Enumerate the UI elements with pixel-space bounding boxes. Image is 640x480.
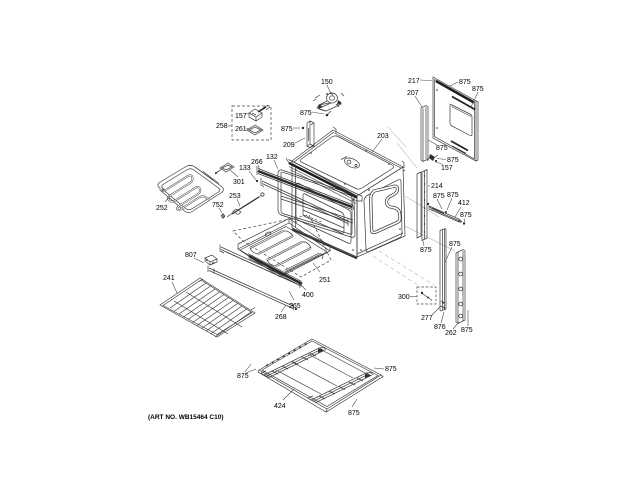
svg-text:875: 875 — [300, 110, 312, 117]
svg-text:251: 251 — [319, 277, 331, 284]
svg-text:262: 262 — [445, 330, 457, 337]
svg-text:424: 424 — [274, 403, 286, 410]
svg-text:412: 412 — [458, 200, 470, 207]
svg-text:875: 875 — [433, 193, 445, 200]
svg-text:133: 133 — [239, 165, 251, 172]
svg-text:207: 207 — [407, 90, 419, 97]
svg-text:875: 875 — [461, 327, 473, 334]
svg-text:(ART NO. WB15464 C10): (ART NO. WB15464 C10) — [148, 414, 224, 421]
svg-text:217: 217 — [408, 78, 420, 85]
svg-text:875: 875 — [447, 157, 459, 164]
svg-text:253: 253 — [229, 193, 241, 200]
svg-text:875: 875 — [281, 126, 293, 133]
svg-text:875: 875 — [237, 373, 249, 380]
svg-text:875: 875 — [460, 212, 472, 219]
svg-text:400: 400 — [302, 292, 314, 299]
svg-text:875: 875 — [447, 192, 459, 199]
svg-text:214: 214 — [431, 183, 443, 190]
svg-text:300: 300 — [398, 294, 410, 301]
svg-text:875: 875 — [385, 366, 397, 373]
svg-text:875: 875 — [449, 241, 461, 248]
svg-text:807: 807 — [185, 252, 197, 259]
svg-text:203: 203 — [377, 133, 389, 140]
svg-text:752: 752 — [212, 202, 224, 209]
svg-text:875: 875 — [348, 410, 360, 417]
svg-text:266: 266 — [251, 159, 263, 166]
svg-text:157: 157 — [235, 113, 247, 120]
svg-text:150: 150 — [321, 79, 333, 86]
svg-text:132: 132 — [266, 154, 278, 161]
svg-text:157: 157 — [441, 165, 453, 172]
svg-text:265: 265 — [289, 303, 301, 310]
svg-text:875: 875 — [436, 145, 448, 152]
svg-text:875: 875 — [472, 86, 484, 93]
svg-text:258: 258 — [216, 123, 228, 130]
svg-text:875: 875 — [420, 247, 432, 254]
svg-text:268: 268 — [275, 314, 287, 321]
svg-text:261: 261 — [235, 126, 247, 133]
svg-text:875: 875 — [459, 79, 471, 86]
svg-text:277: 277 — [421, 315, 433, 322]
svg-text:301: 301 — [233, 179, 245, 186]
svg-text:252: 252 — [156, 205, 168, 212]
svg-text:241: 241 — [163, 275, 175, 282]
svg-text:209: 209 — [283, 142, 295, 149]
